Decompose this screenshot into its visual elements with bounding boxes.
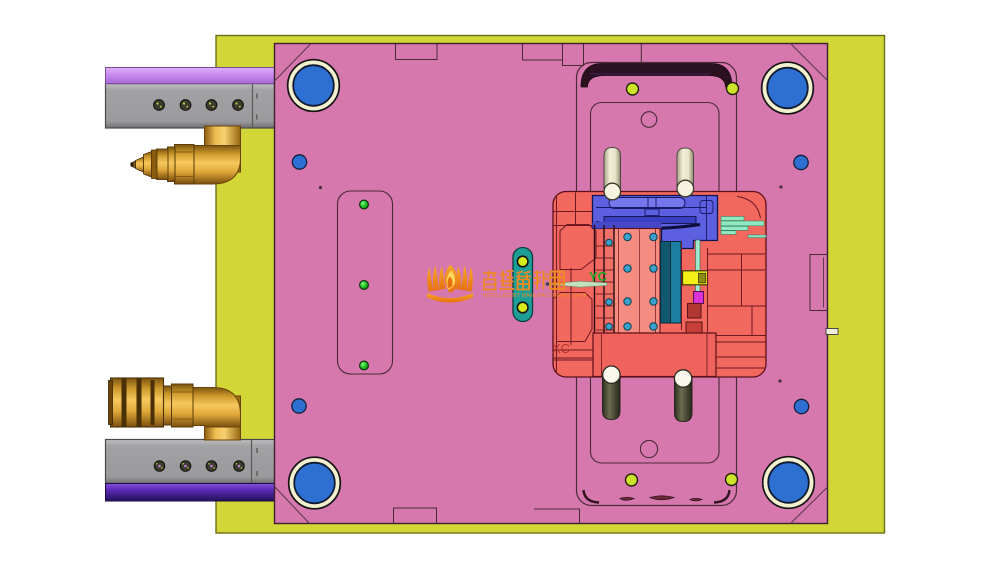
svg-text:INTELLIGENT MANUFACTURING DATA: INTELLIGENT MANUFACTURING DATA <box>483 293 587 299</box>
svg-text:XC: XC <box>552 341 570 356</box>
